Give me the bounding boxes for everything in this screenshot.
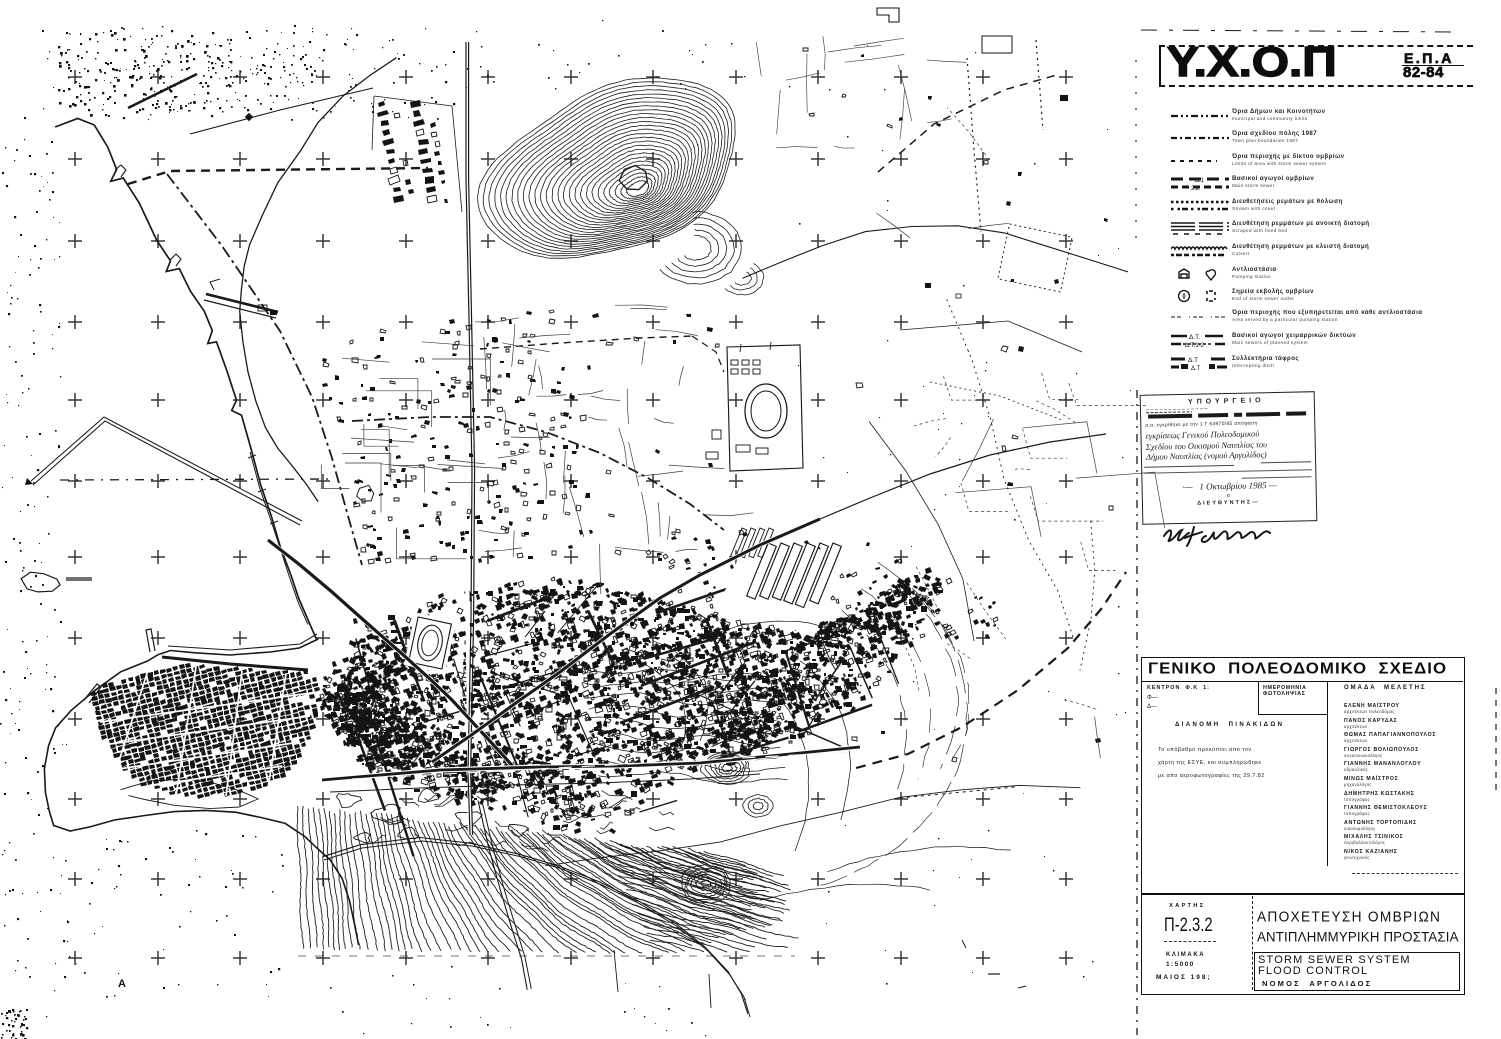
svg-text:Δ.Τ.1-2: Δ.Τ.1-2 [1185, 343, 1205, 348]
svg-text:Δ.Τ: Δ.Τ [1191, 366, 1201, 371]
svg-text:Δ.Τ: Δ.Τ [1188, 357, 1198, 364]
svg-text:Δ.1: Δ.1 [1195, 178, 1205, 184]
svg-text:2.2: 2.2 [1191, 186, 1200, 191]
svg-text:A: A [118, 978, 126, 990]
svg-text:Δ.Τ.: Δ.Τ. [1189, 334, 1200, 341]
